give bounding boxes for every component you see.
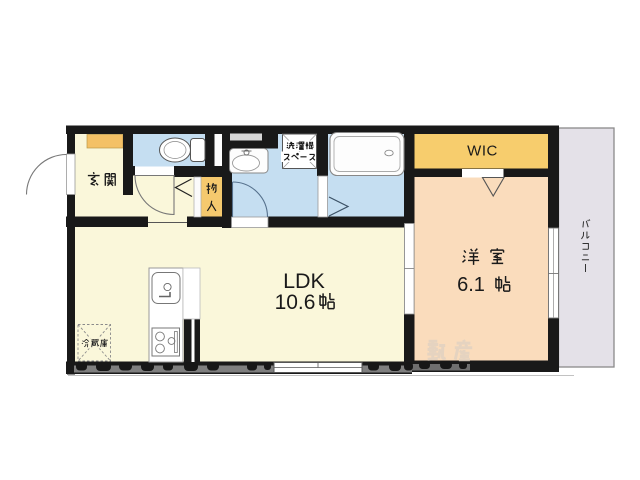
svg-text:10.6: 10.6 <box>275 291 316 314</box>
svg-text:WIC: WIC <box>467 143 498 160</box>
svg-text:6.1: 6.1 <box>457 274 485 296</box>
svg-text:LDK: LDK <box>283 269 325 293</box>
